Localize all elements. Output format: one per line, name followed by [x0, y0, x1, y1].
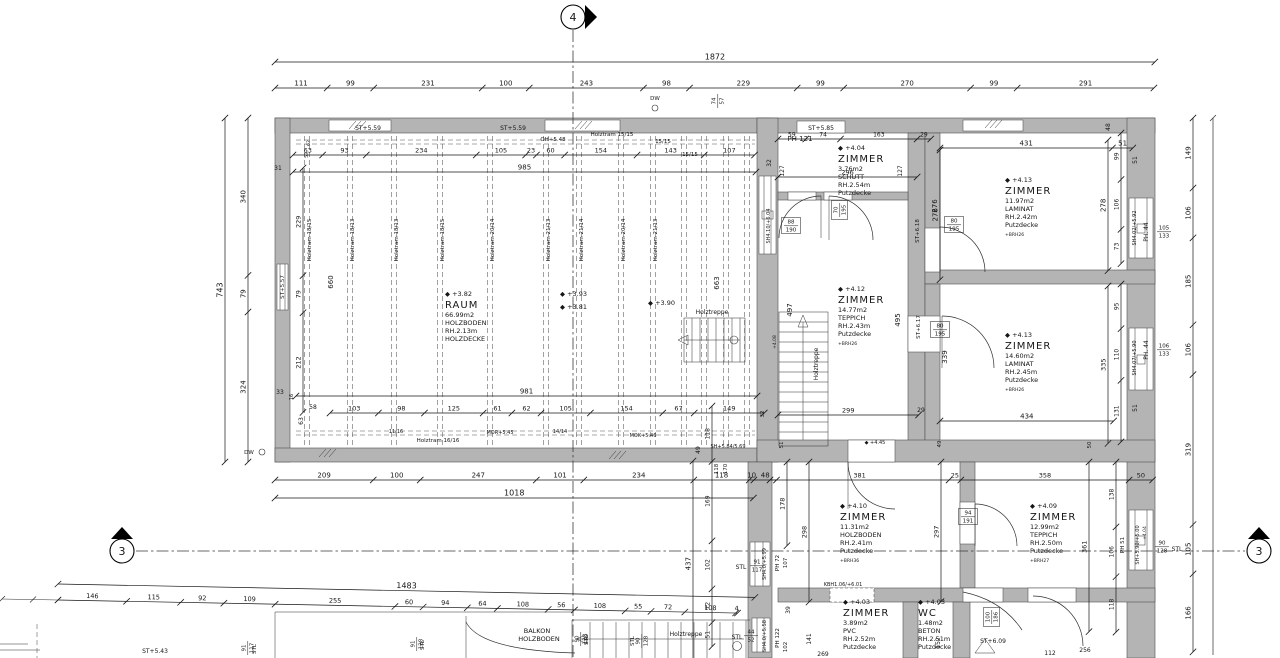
dim-label: 109: [243, 595, 256, 603]
svg-text:190: 190: [786, 228, 797, 234]
dim-label: 108: [594, 602, 607, 610]
plan-label: 339: [941, 350, 949, 363]
dim-label: 1018: [504, 489, 524, 498]
dim-label: 100: [390, 472, 403, 480]
plan-label: 32: [766, 159, 773, 167]
dim-label: 10: [747, 472, 756, 480]
svg-text:128: 128: [583, 633, 589, 644]
size-fraction-label: 100186: [984, 608, 1000, 627]
dim-label: 278: [1100, 199, 1108, 212]
dim-label: 101: [553, 472, 566, 480]
dim-label: 234: [415, 147, 427, 155]
dim-label: 99: [346, 80, 355, 88]
floor-plan-canvas: Holztram 18/15Holztram 18/13Holztram 18/…: [0, 0, 1280, 658]
svg-text:Putzdecke: Putzdecke: [1030, 547, 1063, 555]
dim-chain: 1872: [272, 53, 1158, 66]
plan-label: ◆ +4.45: [865, 440, 886, 446]
plan-label: ST+5.57: [280, 275, 286, 299]
svg-text:100: 100: [986, 611, 992, 622]
svg-text:RH.2.42m: RH.2.42m: [1005, 213, 1037, 221]
plan-label: STL: [1172, 546, 1183, 553]
size-fraction-label: 88190: [782, 218, 801, 234]
dim-label: 48: [761, 472, 770, 480]
svg-text:ZIMMER: ZIMMER: [843, 608, 889, 619]
svg-text:RH.2.51m: RH.2.51m: [918, 635, 950, 643]
dim-label: 92: [198, 594, 206, 602]
dim-label: 270: [900, 80, 913, 88]
dim-label: 94: [441, 599, 449, 607]
dim-label: 95: [1114, 302, 1121, 310]
dim-label: 138: [1109, 489, 1116, 501]
beam-label: Holztram 21/14: [579, 218, 585, 261]
plan-label: 53: [304, 152, 310, 158]
beam: [682, 136, 687, 446]
svg-text:◆ +4.09: ◆ +4.09: [1030, 502, 1057, 510]
dim-label: 105: [559, 405, 571, 413]
dim-label: 324: [240, 380, 248, 394]
svg-text:BETON: BETON: [918, 627, 941, 635]
svg-text:133: 133: [1159, 352, 1170, 358]
dim-label: 50: [1137, 472, 1145, 480]
beam-label: Holztram 20/14: [621, 218, 627, 261]
size-fraction-label: 70195: [832, 201, 848, 220]
dim-label: 143: [664, 147, 676, 155]
plan-label: 29: [917, 407, 925, 414]
plan-label: KBH1.06/+6.01: [824, 582, 863, 588]
window: [963, 120, 1023, 131]
dim-label: 319: [1185, 443, 1193, 456]
dim-label: 56: [557, 601, 565, 609]
dim-label: 105: [495, 147, 507, 155]
room-label: ◆ +3.82RAUM66.99m2HOLZBODENRH.2.13mHOLZD…: [445, 290, 487, 343]
plan-label: PH 121: [787, 135, 812, 143]
plan-label: +4.04: [1142, 526, 1148, 540]
dim-label: 229: [737, 80, 750, 88]
svg-text:52: 52: [748, 638, 755, 644]
door-opening: [925, 228, 940, 272]
svg-text:90: 90: [575, 635, 581, 642]
beam: [745, 136, 750, 446]
plan-label: 112: [1044, 650, 1056, 657]
svg-text:HOLZDECKE: HOLZDECKE: [445, 335, 485, 343]
dim-label: 102: [705, 559, 712, 571]
room-label: ◆ +4.13ZIMMER14.60m2LAMINATRH.2.45mPutzd…: [1005, 331, 1051, 393]
svg-text:11.97m2: 11.97m2: [1005, 197, 1034, 205]
plan-label: 50: [1087, 441, 1093, 448]
plan-label: ST+6.17: [916, 315, 922, 339]
plan-label: ST+6.18: [915, 219, 921, 243]
plan-label: SH4.10/+6.04: [766, 208, 772, 243]
plan-label: ST+5.59: [500, 125, 526, 132]
dim-label: 209: [317, 472, 330, 480]
window: [1129, 510, 1153, 570]
svg-text:WC: WC: [918, 608, 937, 619]
dim-label: 340: [240, 190, 248, 203]
dim-chain: 1018: [272, 489, 757, 502]
plan-label: 497: [786, 303, 794, 316]
door-opening: [788, 192, 816, 200]
beam: Holztram 18/13: [392, 136, 401, 446]
svg-text:44: 44: [748, 630, 755, 636]
staircase-bottom: [572, 620, 750, 658]
svg-text:Putzdecke: Putzdecke: [838, 189, 871, 197]
dim-label: 212: [295, 356, 303, 368]
svg-text:RH.2.54m: RH.2.54m: [838, 181, 870, 189]
dim-label: 23: [527, 147, 535, 155]
plan-label: 33: [276, 389, 284, 396]
beam-label: Holztram 21/13: [653, 218, 659, 261]
plan-label: 269: [817, 651, 829, 658]
plan-label: 127: [897, 165, 904, 177]
svg-text:195: 195: [842, 204, 848, 215]
dim-label: 166: [1185, 606, 1193, 620]
room-label: ◆ +4.09ZIMMER12.99m2TEPPICHRH.2.50mPutzd…: [1029, 502, 1076, 564]
plan-label: ST+5.85: [808, 125, 834, 132]
dim-label: 60: [405, 598, 413, 606]
dim-label: 298: [801, 526, 809, 538]
plan-label: Holztram 15/15: [591, 132, 634, 138]
size-fraction-label: 80195: [945, 217, 964, 233]
dw-symbol: [652, 105, 658, 111]
dim-label: 100: [499, 80, 512, 88]
svg-text:88: 88: [788, 220, 795, 226]
door-arc: [940, 227, 985, 272]
plan-label: 58: [309, 404, 317, 411]
svg-text:11.31m2: 11.31m2: [840, 523, 869, 531]
beam: Holztram 18/15: [305, 136, 314, 446]
svg-text:12.99m2: 12.99m2: [1030, 523, 1059, 531]
room-label: ◆ +4.10ZIMMER11.31m2HOLZBODENRH.2.41mPut…: [840, 502, 886, 564]
dim-label: 247: [472, 472, 485, 480]
plan-label: 62: [306, 140, 312, 146]
size-fraction-label: 91117: [242, 641, 256, 655]
svg-text:128: 128: [419, 638, 425, 649]
dim-chain: 297: [933, 459, 945, 605]
plan-label: PH 72: [775, 555, 781, 571]
dim-label: 110: [1114, 349, 1121, 361]
dim-label: 234: [632, 472, 646, 480]
plan-label: Holztreppe: [670, 631, 703, 638]
dim-label: 243: [580, 80, 593, 88]
svg-text:128: 128: [1157, 549, 1168, 555]
plan-label: ST+6.09: [980, 638, 1006, 645]
svg-text:PVC: PVC: [843, 627, 856, 635]
plan-label: 39: [785, 606, 792, 614]
staircase-middle: [779, 312, 828, 446]
plan-label: SH4.02/+5.92: [1132, 210, 1138, 245]
door-arc: [829, 196, 873, 240]
size-fraction-label: 90128: [636, 634, 650, 648]
dim-label: 163: [873, 132, 885, 139]
plan-label: Holztreppe: [813, 347, 820, 380]
svg-text:Putzdecke: Putzdecke: [840, 547, 873, 555]
section-marker-3: 3: [1247, 527, 1271, 563]
room-label: ◆ +4.03WC1.48m2BETONRH.2.51mPutzdecke: [918, 598, 951, 651]
dim-label: 361: [1081, 541, 1089, 553]
door-arc: [1033, 596, 1083, 646]
svg-text:4: 4: [570, 11, 577, 24]
svg-text:ZIMMER: ZIMMER: [838, 154, 884, 165]
plan-label: SH+5.90/+5.00: [1135, 525, 1141, 564]
plan-label: MOK+5.46: [630, 433, 657, 439]
dim-label: 61: [493, 405, 501, 413]
svg-text:Putzdecke: Putzdecke: [838, 330, 871, 338]
dim-label: 149: [723, 405, 735, 413]
svg-text:70: 70: [834, 206, 840, 213]
dim-label: 111: [294, 80, 307, 88]
room-label: ◆ +4.12ZIMMER14.77m2TEPPICHRH.2.43mPutzd…: [837, 285, 884, 347]
beam-label: Holztram 21/13: [546, 218, 552, 261]
svg-text:91: 91: [411, 641, 417, 648]
svg-text:74: 74: [712, 97, 718, 104]
dim-label: 60: [546, 147, 554, 155]
dim-chain: 9910673: [1114, 130, 1125, 267]
dim-label: 29: [920, 132, 928, 139]
dim-label: 115: [147, 593, 160, 601]
svg-text:80: 80: [951, 219, 958, 225]
dim-label: 154: [620, 405, 632, 413]
svg-text:RH.2.50m: RH.2.50m: [1030, 539, 1062, 547]
dim-label: 4: [734, 604, 738, 612]
svg-text:1.48m2: 1.48m2: [918, 619, 943, 627]
dim-label: 981: [520, 388, 533, 396]
svg-text:◆ +4.12: ◆ +4.12: [838, 285, 865, 293]
plan-label: 141: [806, 633, 813, 645]
svg-text:RH.2.41m: RH.2.41m: [840, 539, 872, 547]
dim-label: 98: [397, 405, 405, 413]
dim-label: 74: [819, 132, 827, 139]
svg-text:Putzdecke: Putzdecke: [918, 643, 951, 651]
plan-label: ◆ +3.81: [560, 303, 587, 311]
dim-label: 79: [295, 290, 303, 298]
svg-text:ZIMMER: ZIMMER: [838, 295, 884, 306]
dim-label: 131: [1114, 405, 1121, 417]
dim-label: 107: [723, 147, 735, 155]
svg-text:Putzdecke: Putzdecke: [843, 643, 876, 651]
size-fraction-label: 106133: [1157, 344, 1171, 358]
dim-label: 169: [705, 495, 712, 507]
plan-label: 63: [298, 417, 305, 425]
plan-label: Holztram 16/16: [417, 438, 460, 444]
svg-text:195: 195: [935, 332, 946, 338]
plan-label: Holztreppe: [696, 309, 729, 316]
door-opening: [963, 588, 1003, 602]
dim-label: 62: [522, 405, 530, 413]
plan-label: PH 51: [1120, 537, 1126, 553]
dim-label: 431: [1020, 140, 1033, 148]
svg-text:186: 186: [994, 611, 1000, 622]
dim-chain: 985: [290, 164, 759, 176]
svg-text:◆ +4.13: ◆ +4.13: [1005, 331, 1032, 339]
dim-label: 106: [1109, 546, 1116, 558]
dw-symbol: [259, 449, 265, 455]
beam-label: Holztram 18/13: [350, 218, 356, 261]
dim-label: 98: [662, 80, 671, 88]
svg-text:LAMINAT: LAMINAT: [1005, 360, 1034, 368]
svg-text:ZIMMER: ZIMMER: [840, 512, 886, 523]
dim-chain: 11199231100243982299927099291: [272, 80, 1157, 92]
plan-label: ◆ +3.90: [648, 299, 675, 307]
dim-chain: 43151: [937, 140, 1136, 152]
dim-label: 231: [421, 80, 434, 88]
dim-label: 146: [86, 592, 99, 600]
dim-chain: 299: [775, 407, 922, 419]
dim-label: 437: [685, 557, 693, 570]
dim-chain: 149106185106319105166: [1185, 115, 1197, 655]
svg-text:ZIMMER: ZIMMER: [1005, 341, 1051, 352]
plan-label: 107: [783, 557, 789, 568]
plan-label: DW: [650, 96, 660, 102]
staircase-raum: [678, 318, 745, 362]
dim-label: 743: [216, 282, 225, 297]
svg-text:91: 91: [754, 560, 761, 566]
svg-text:94: 94: [965, 511, 972, 517]
beam-label: Holztram 18/15: [307, 218, 313, 261]
dim-label: 51: [705, 631, 712, 639]
plan-label: 51: [1132, 404, 1139, 412]
dim-chain: 361: [1081, 459, 1093, 635]
svg-text:14.77m2: 14.77m2: [838, 306, 867, 314]
dim-label: 178: [779, 498, 787, 510]
plan-label: 14/14: [553, 429, 567, 435]
svg-text:128: 128: [644, 635, 650, 646]
dim-chain: 95110131: [1114, 281, 1125, 445]
dim-label: 185: [1185, 275, 1193, 288]
svg-text:TEPPICH: TEPPICH: [837, 314, 865, 322]
beam: Holztram 21/13: [544, 136, 553, 446]
dim-label: 381: [853, 472, 865, 480]
svg-text:HOLZBODEN: HOLZBODEN: [840, 531, 882, 539]
svg-text:+BRH26: +BRH26: [1005, 387, 1024, 393]
svg-text:TEPPICH: TEPPICH: [1029, 531, 1057, 539]
plan-label: 127: [779, 165, 786, 177]
dim-chain: 743: [216, 115, 229, 465]
dim-label: 51: [1118, 140, 1127, 148]
beam-label: Holztram 20/14: [490, 218, 496, 261]
plan-label: STL: [736, 564, 747, 571]
beam: Holztram 21/13: [651, 136, 660, 446]
dim-chain: 981: [293, 388, 760, 400]
plan-label: 49: [695, 446, 702, 454]
plan-label: 16: [289, 394, 295, 400]
dim-label: 985: [518, 164, 531, 172]
svg-text:◆ +4.10: ◆ +4.10: [840, 502, 867, 510]
beam: Holztram 20/14: [619, 136, 628, 446]
svg-text:+BRH26: +BRH26: [1005, 232, 1024, 238]
plan-label: PH 122: [775, 628, 781, 648]
dim-label: 25: [951, 472, 959, 480]
svg-text:3: 3: [1256, 545, 1263, 558]
plan-label: SH4.07/+5.90: [1132, 340, 1138, 375]
dim-label: 105: [1185, 543, 1193, 556]
dim-label: 125: [448, 405, 460, 413]
beam: Holztram 20/14: [488, 136, 497, 446]
plan-label: MOR+5.45: [486, 430, 513, 436]
dim-label: 99: [816, 80, 825, 88]
dim-label: 67: [674, 405, 682, 413]
svg-text:HOLZBODEN: HOLZBODEN: [445, 319, 487, 327]
svg-text:195: 195: [949, 227, 960, 233]
svg-text:RAUM: RAUM: [445, 300, 478, 311]
dim-label: 434: [1020, 413, 1034, 421]
svg-text:RH.2.45m: RH.2.45m: [1005, 368, 1037, 376]
dim-chain: 1483: [55, 574, 759, 600]
dim-chain: 138106118: [1109, 459, 1120, 636]
plan-label: ST+5.59: [355, 125, 381, 132]
plan-label: 49: [937, 440, 943, 447]
svg-text:+BRH36: +BRH36: [840, 558, 859, 564]
svg-text:105: 105: [1159, 226, 1170, 232]
plan-label: 51: [779, 442, 785, 449]
svg-text:80: 80: [937, 324, 944, 330]
plan-label: 11/16: [389, 429, 403, 435]
plan-label: 48: [1105, 123, 1112, 131]
dim-label: 108: [517, 600, 530, 608]
plan-label: SH4.0/+5.99: [762, 548, 768, 580]
size-fraction-label: 7457: [712, 94, 726, 108]
dim-label: 99: [1114, 152, 1121, 160]
plan-label: OH+5.48: [540, 137, 566, 143]
dim-label: 299: [842, 407, 854, 415]
room-label: ◆ +4.13ZIMMER11.97m2LAMINATRH.2.42mPutzd…: [1005, 176, 1051, 238]
dim-label: 291: [1079, 80, 1092, 88]
svg-text:ZIMMER: ZIMMER: [1030, 512, 1076, 523]
svg-text:+BRH27: +BRH27: [1030, 558, 1049, 564]
svg-text:106: 106: [1159, 344, 1170, 350]
door-arc: [975, 504, 1017, 546]
svg-text:90: 90: [636, 637, 642, 644]
dim-chain: 437: [685, 458, 697, 658]
plan-label: PH. 44: [1143, 222, 1150, 242]
dim-label: 149: [1185, 146, 1193, 159]
plan-label: +4.08: [772, 335, 778, 349]
svg-text:3: 3: [119, 545, 126, 558]
dim-label: 358: [1039, 472, 1051, 480]
dim-label: 79: [240, 289, 248, 298]
plan-label: 15/15: [655, 139, 671, 145]
plan-label: ◆ +3.93: [560, 290, 587, 298]
dim-label: 255: [329, 597, 342, 605]
dim-label: 1872: [705, 53, 725, 62]
beam-label: Holztram 18/13: [394, 218, 400, 261]
dim-label: 99: [989, 80, 998, 88]
section-marker-3: 3: [110, 527, 134, 563]
svg-text:+BRH26: +BRH26: [838, 341, 857, 347]
room-label: ◆ +4.03ZIMMER3.89m2PVCRH.2.52mPutzdecke: [843, 598, 889, 651]
section-marker-4: 4: [561, 5, 597, 29]
plan-label: 276: [931, 199, 939, 213]
svg-text:117: 117: [752, 568, 763, 574]
plan-label: ST+5.43: [142, 648, 168, 655]
svg-text:57: 57: [720, 97, 726, 104]
svg-text:117: 117: [250, 642, 256, 653]
dim-label: 72: [705, 602, 712, 610]
plan-label: SH4.0/+5.58: [762, 620, 768, 652]
size-fraction-label: 90128: [1155, 541, 1169, 555]
svg-text:◆ +3.82: ◆ +3.82: [445, 290, 472, 298]
plan-label: 32: [760, 411, 766, 418]
dim-label: 106: [1185, 342, 1193, 356]
size-fraction-label: 91128: [411, 637, 425, 651]
svg-text:SCHUTT: SCHUTT: [838, 173, 864, 181]
svg-text:191: 191: [963, 519, 974, 525]
plan-label: 51: [1132, 156, 1139, 164]
svg-text:133: 133: [1159, 234, 1170, 240]
svg-text:◆ +4.04: ◆ +4.04: [838, 144, 865, 152]
room-label: ◆ +4.04ZIMMER3.76m2SCHUTTRH.2.54mPutzdec…: [838, 144, 884, 197]
dim-chain: 335: [1100, 283, 1112, 447]
dim-label: 229: [295, 216, 303, 228]
